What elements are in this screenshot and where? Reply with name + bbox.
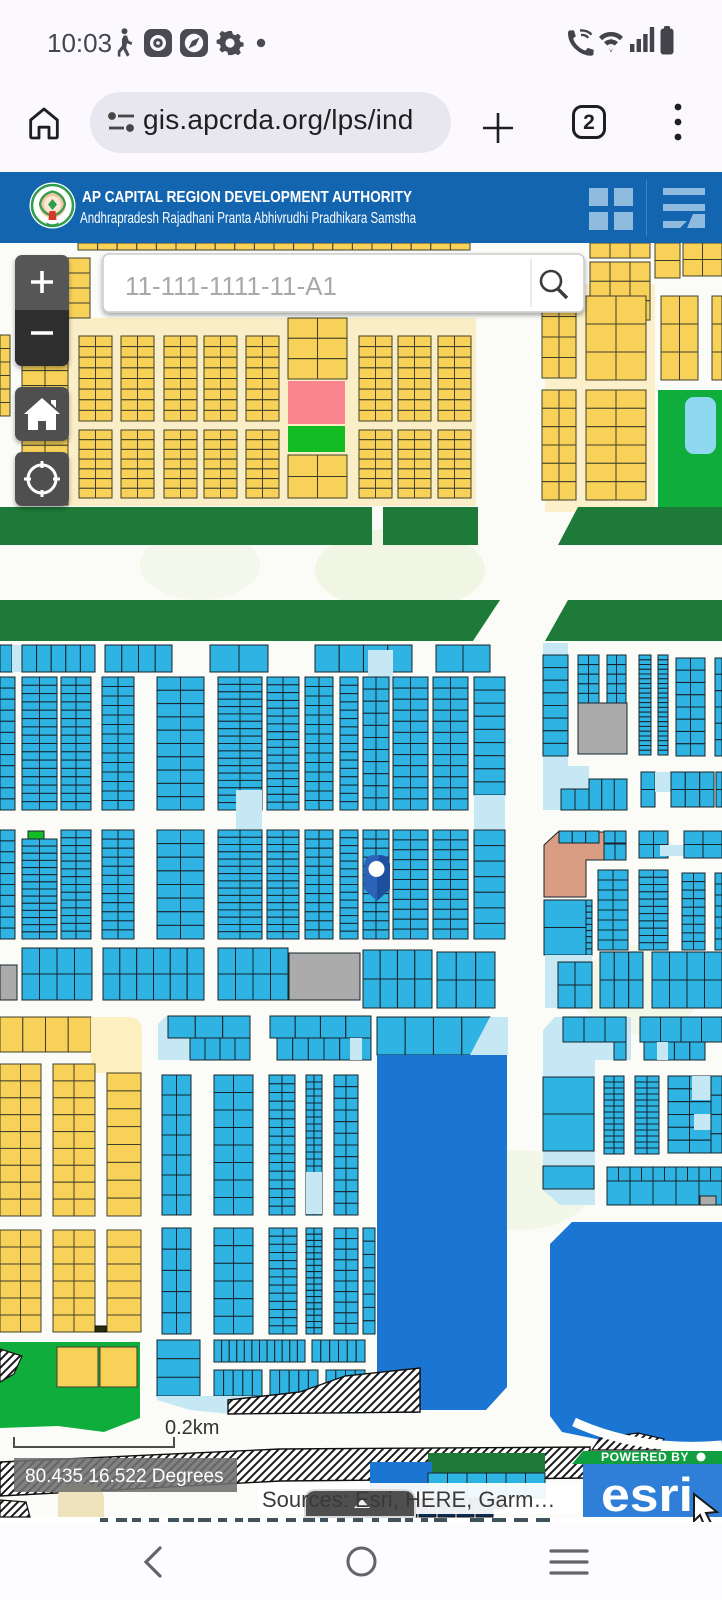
svg-text:AP CAPITAL REGION DEVELOPMENT: AP CAPITAL REGION DEVELOPMENT AUTHORITY: [82, 189, 413, 206]
svg-text:Sources: Esri, HERE, Garm…: Sources: Esri, HERE, Garm…: [262, 1487, 555, 1512]
svg-text:0.2km: 0.2km: [165, 1417, 219, 1439]
svg-text:POWERED BY: POWERED BY: [601, 1450, 689, 1464]
svg-text:esri: esri: [601, 1468, 693, 1521]
svg-text:80.435 16.522 Degrees: 80.435 16.522 Degrees: [25, 1466, 224, 1487]
svg-text:11-111-1111-11-A1: 11-111-1111-11-A1: [125, 271, 337, 301]
svg-text:Andhrapradesh Rajadhani Pranta: Andhrapradesh Rajadhani Pranta Abhivrudh…: [80, 210, 416, 227]
